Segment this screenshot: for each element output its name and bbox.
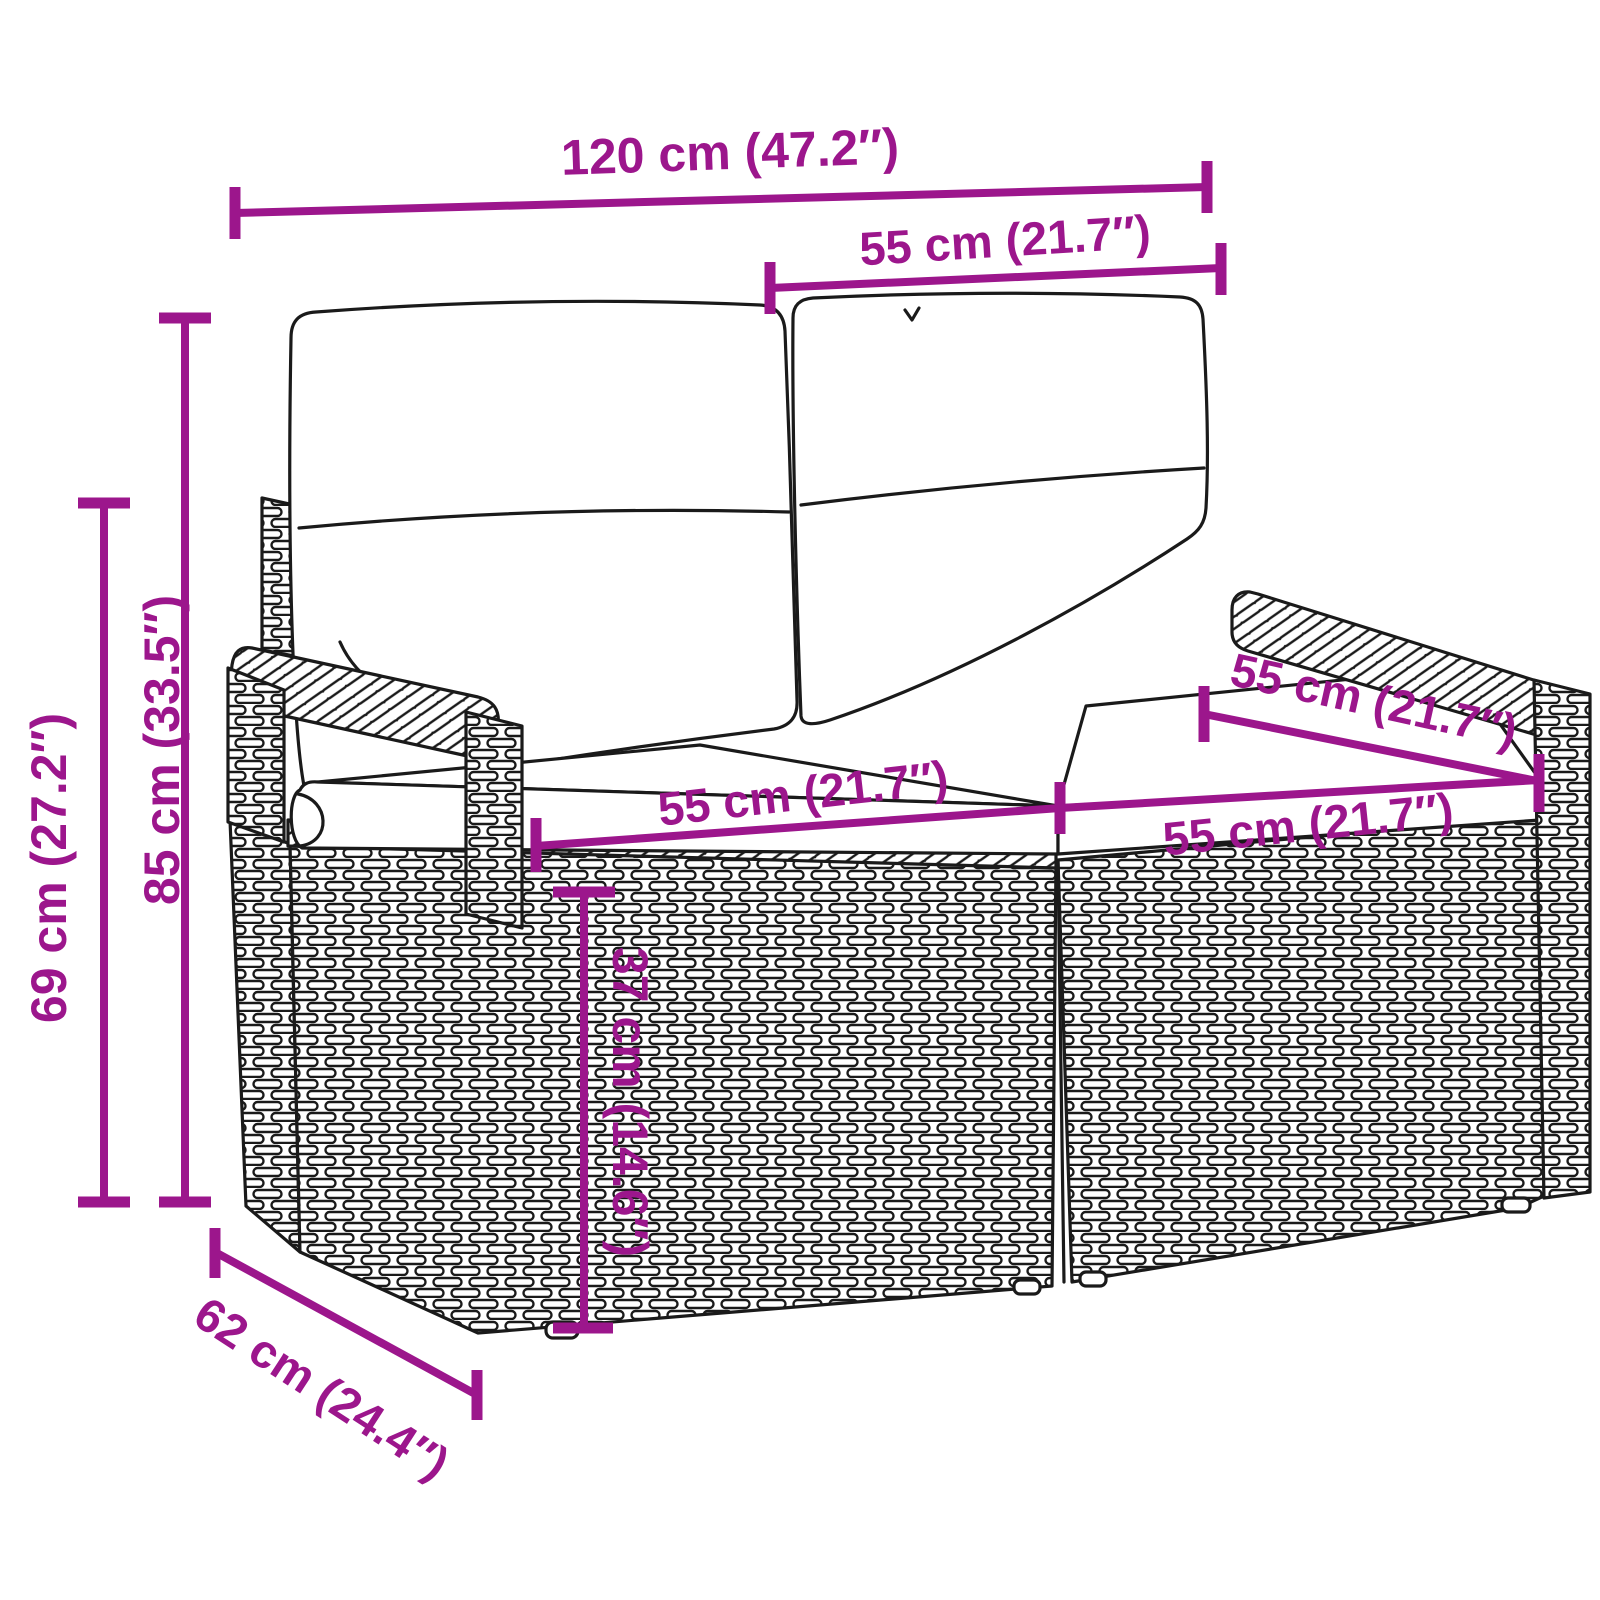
label-overall-depth: 62 cm (24.4″) bbox=[185, 1286, 458, 1489]
left-armrest-inner-post bbox=[466, 712, 522, 928]
bench-foot-3 bbox=[1080, 1272, 1106, 1286]
label-overall-width: 120 cm (47.2″) bbox=[560, 118, 900, 186]
dim-line bbox=[770, 268, 1221, 288]
bench-foot-2 bbox=[1014, 1280, 1040, 1294]
base-front-right-panel bbox=[1058, 816, 1544, 1282]
label-arm-side-height: 69 cm (27.2″) bbox=[21, 713, 77, 1023]
label-seat-height: 37 cm (14.6″) bbox=[602, 947, 658, 1257]
dimension-arm-side-height bbox=[78, 503, 130, 1202]
back-cushion-right bbox=[793, 293, 1208, 723]
base-front-left-panel bbox=[290, 844, 1056, 1333]
label-total-height: 85 cm (33.5″) bbox=[134, 595, 190, 905]
diagram-canvas: 120 cm (47.2″) 55 cm (21.7″) 55 cm (21.7… bbox=[0, 0, 1600, 1600]
bench-foot-4 bbox=[1502, 1198, 1530, 1212]
label-backrest-width: 55 cm (21.7″) bbox=[858, 205, 1152, 276]
left-armrest-front-post bbox=[228, 668, 284, 842]
